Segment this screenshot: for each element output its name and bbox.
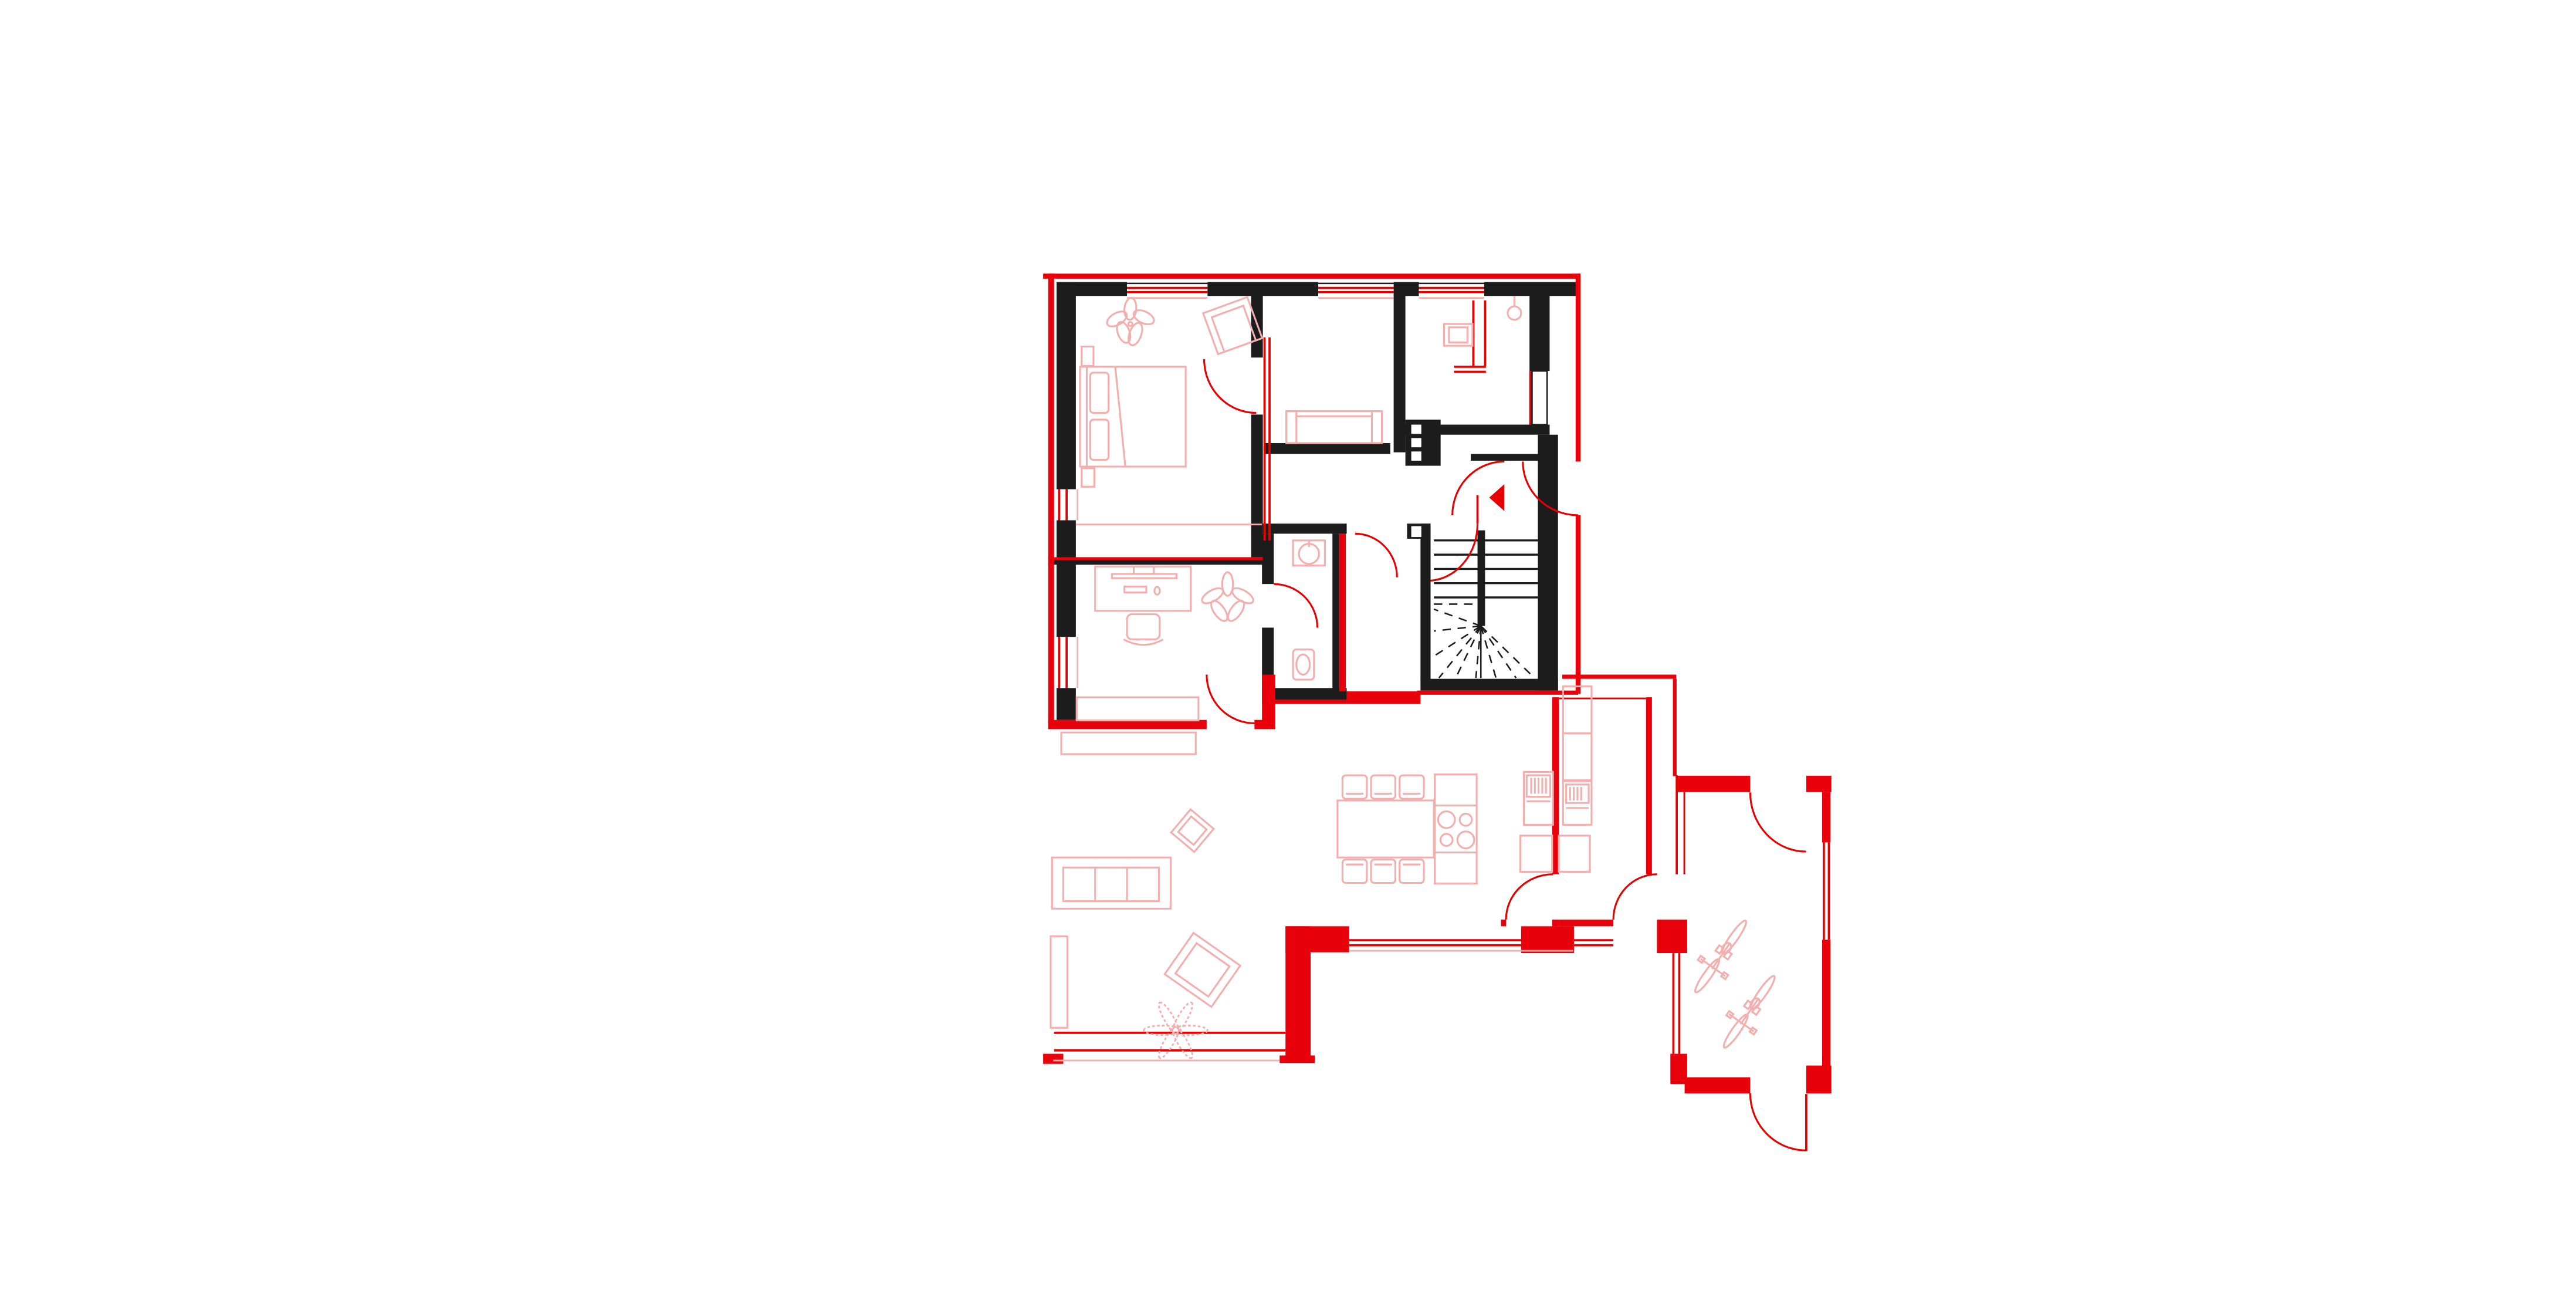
living-sideboard-left <box>1051 936 1068 1028</box>
utility-room-right-wall <box>1529 295 1549 371</box>
cooktop-burner-2 <box>1460 814 1472 826</box>
door-arc-kitchen <box>1506 874 1553 920</box>
radiator-slot-3 <box>1411 451 1421 461</box>
radiator-slot-2 <box>1411 438 1421 447</box>
armchair-inner <box>1176 943 1230 997</box>
armchair-inner <box>1211 306 1255 352</box>
wall-left-pier-3 <box>1057 688 1076 720</box>
chair <box>1371 775 1395 799</box>
kitchen-counter-right <box>1559 836 1590 872</box>
office-sideboard <box>1077 697 1199 720</box>
bike-frame <box>1741 999 1758 1024</box>
leaf-5 <box>1115 320 1133 344</box>
corridor-niche-wall <box>1471 454 1543 461</box>
wing-bottom-corner <box>1806 1066 1832 1093</box>
living-armchair <box>1165 933 1240 1007</box>
stair-winder-ray-8 <box>1481 626 1516 678</box>
wc-right-wall-red <box>1339 533 1346 691</box>
kitchen-counter-left <box>1520 836 1552 872</box>
office-plant <box>1200 572 1255 623</box>
entry-wall-mid <box>1559 920 1613 926</box>
stair-winder-ray-9 <box>1481 626 1534 678</box>
stair-corner-duct <box>1411 526 1421 538</box>
office-keyboard <box>1125 586 1146 592</box>
wheel-rear <box>1719 918 1749 956</box>
wall-top-pier-4 <box>1484 282 1578 296</box>
stool-inner <box>1178 816 1206 845</box>
bicycle-2 <box>1711 967 1788 1058</box>
chair <box>1371 860 1395 883</box>
leaf-3 <box>1200 585 1226 606</box>
wall-left-pier-2 <box>1057 521 1076 637</box>
wing-top-wall-left <box>1676 776 1750 792</box>
wing-bottom-wall-left <box>1685 1077 1751 1093</box>
east-wall-upper <box>1673 679 1677 776</box>
wheel-rear <box>1748 974 1778 1011</box>
bedroom-office-divider-red <box>1048 557 1263 560</box>
wc-toilet-bowl <box>1297 654 1310 674</box>
bedroom-office-divider-black <box>1048 560 1263 565</box>
wall-top-pier-3 <box>1394 282 1419 296</box>
entry-wall-stub-left <box>1501 920 1507 926</box>
leaf-4 <box>1225 598 1247 623</box>
office-mouse <box>1155 587 1160 594</box>
stair-bottom-red <box>1417 691 1578 695</box>
wc-right-wall-black <box>1332 533 1339 691</box>
bed-pillow-1 <box>1090 373 1108 413</box>
utility-lamp <box>1508 306 1521 320</box>
living-sw-corner-cap <box>1043 1054 1063 1064</box>
entry-pier-A <box>1521 926 1574 953</box>
radiator-slot-1 <box>1411 425 1421 434</box>
nightstand-1 <box>1082 347 1094 366</box>
bedroom-plant <box>1105 298 1156 347</box>
stair-right-wall <box>1538 435 1558 691</box>
terrace-pier-vert <box>1285 926 1311 1060</box>
armchair-outer <box>1165 933 1240 1007</box>
radiator-column <box>1406 420 1441 466</box>
bed-duvet-line <box>1115 367 1125 467</box>
wing-right-wall-upper <box>1822 792 1830 843</box>
office-chair-seat <box>1127 614 1160 640</box>
wc-north-wall <box>1263 523 1347 533</box>
hall-bench-arm-left <box>1287 411 1297 443</box>
kitchen-north-wall <box>1562 675 1676 679</box>
wc-left-wall-upper <box>1262 533 1274 584</box>
floor-plan-canvas <box>0 0 2576 1314</box>
door-arc-hallway <box>1613 874 1657 920</box>
chair <box>1342 860 1366 883</box>
chair <box>1400 860 1424 883</box>
chair <box>1342 775 1366 799</box>
frond-6 <box>1169 1023 1196 1060</box>
stair-winder-ray-7 <box>1481 626 1496 678</box>
stair-winder-ray-1 <box>1434 609 1481 626</box>
office-south-wall-stub <box>1254 720 1262 729</box>
sofa-seats <box>1063 867 1159 901</box>
dining-chair-3 <box>1400 775 1424 799</box>
bed <box>1080 367 1186 467</box>
wing-top-wall-right <box>1806 776 1832 792</box>
door-arc-bedroom <box>1204 359 1257 413</box>
dining-chair-2 <box>1371 775 1395 799</box>
stair-spine-wall <box>1478 531 1485 626</box>
dining-chair-1 <box>1342 775 1366 799</box>
entry-window-corner-block <box>1670 1054 1687 1084</box>
office-pc <box>1133 566 1153 574</box>
chair <box>1400 775 1424 799</box>
door-arc-stair <box>1430 523 1477 580</box>
stool-outer <box>1171 809 1213 852</box>
nightstand-2 <box>1082 468 1094 487</box>
living-sideboard-top <box>1061 732 1196 754</box>
outer-red-right-upper <box>1576 273 1581 461</box>
cooktop-burner-3 <box>1440 834 1453 846</box>
cooktop-burner-1 <box>1438 812 1455 829</box>
kitchen-island <box>1435 775 1477 884</box>
door-arc-wc <box>1274 584 1317 627</box>
bedroom-right-wall-lower <box>1251 414 1263 557</box>
leaf-5 <box>1208 598 1230 623</box>
hall-bench-wall <box>1264 443 1390 454</box>
leaf-2 <box>1230 585 1255 606</box>
wall-left-pier-1 <box>1057 282 1076 489</box>
stair-bottom-wall <box>1420 679 1558 691</box>
utility-room-left-wall <box>1394 295 1406 452</box>
door-arc-wing-top <box>1750 792 1806 852</box>
dining-table <box>1338 800 1434 857</box>
stair-left-wall <box>1420 523 1430 680</box>
bicycle-1 <box>1682 911 1759 1002</box>
wc-bottom-red <box>1262 700 1346 704</box>
utility-basin-inner <box>1449 327 1467 343</box>
bed-pillow-2 <box>1090 420 1108 460</box>
door-arc-office <box>1207 675 1254 724</box>
door-arc-closet <box>1355 533 1397 577</box>
entry-pier-B <box>1657 920 1687 953</box>
outer-red-left <box>1048 273 1054 729</box>
closet-bottom-red <box>1347 691 1421 704</box>
dining-chair-4 <box>1342 860 1366 883</box>
hall-partition-V2 <box>1646 697 1652 874</box>
dining-chair-5 <box>1371 860 1395 883</box>
door-arc-wing-exterior <box>1750 1093 1806 1150</box>
entry-pier-A-notch <box>1552 920 1559 926</box>
living-stool <box>1171 809 1213 852</box>
wall-top-pier-2 <box>1207 282 1318 296</box>
outer-red-top <box>1043 273 1580 279</box>
leaf-c <box>1128 322 1132 326</box>
cooktop-burner-4 <box>1457 832 1474 849</box>
terrace-pier-cap <box>1279 1055 1315 1063</box>
hall-bench-arm-right <box>1372 411 1382 443</box>
kitchen-tall-unit-2 <box>1563 734 1592 781</box>
dining-chair-6 <box>1400 860 1424 883</box>
entry-direction-triangle <box>1490 484 1505 511</box>
bike-frame <box>1712 944 1729 969</box>
outer-red-right-lower <box>1576 515 1581 694</box>
